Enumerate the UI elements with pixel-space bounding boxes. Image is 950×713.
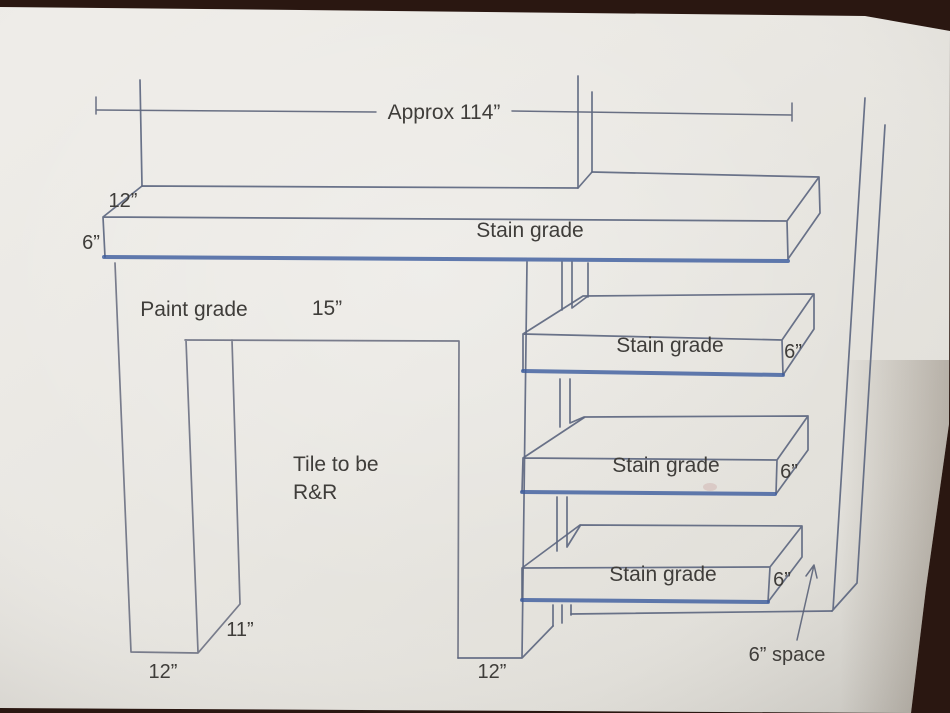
tile-note-line2: R&R	[293, 481, 337, 504]
leg-width-label: 15”	[312, 297, 342, 320]
shelf-3-material-label: Stain grade	[609, 563, 716, 586]
overall-width-label: Approx 114”	[388, 101, 501, 124]
leg-side-depth-label: 11”	[226, 619, 253, 641]
leg-material-label: Paint grade	[140, 298, 247, 321]
right-leg-bottom-label: 12”	[478, 661, 507, 683]
fireplace-sketch-svg: Approx 114” 12” 6” Stain grade Paint gra…	[0, 0, 950, 713]
mantel-thickness-label: 6”	[82, 232, 100, 254]
shelf-2-material-label: Stain grade	[612, 454, 719, 477]
shelf-2-bottom-edge	[522, 492, 775, 494]
shelf-3-thickness-label: 6”	[773, 569, 791, 591]
tile-note-line1: Tile to be	[293, 453, 379, 476]
wall-gap-label: 6” space	[749, 644, 826, 666]
left-leg-bottom-label: 12”	[149, 661, 178, 683]
shelf-3-bottom-edge	[522, 600, 768, 602]
paper-smudge	[703, 483, 717, 491]
mantel-depth-label: 12”	[109, 190, 138, 212]
shelf-2-thickness-label: 6”	[780, 461, 798, 483]
mantel-material-label: Stain grade	[476, 219, 583, 242]
photo-of-sketch: Approx 114” 12” 6” Stain grade Paint gra…	[0, 0, 950, 713]
shelf-1-material-label: Stain grade	[616, 334, 723, 357]
shelf-1-thickness-label: 6”	[784, 341, 802, 363]
